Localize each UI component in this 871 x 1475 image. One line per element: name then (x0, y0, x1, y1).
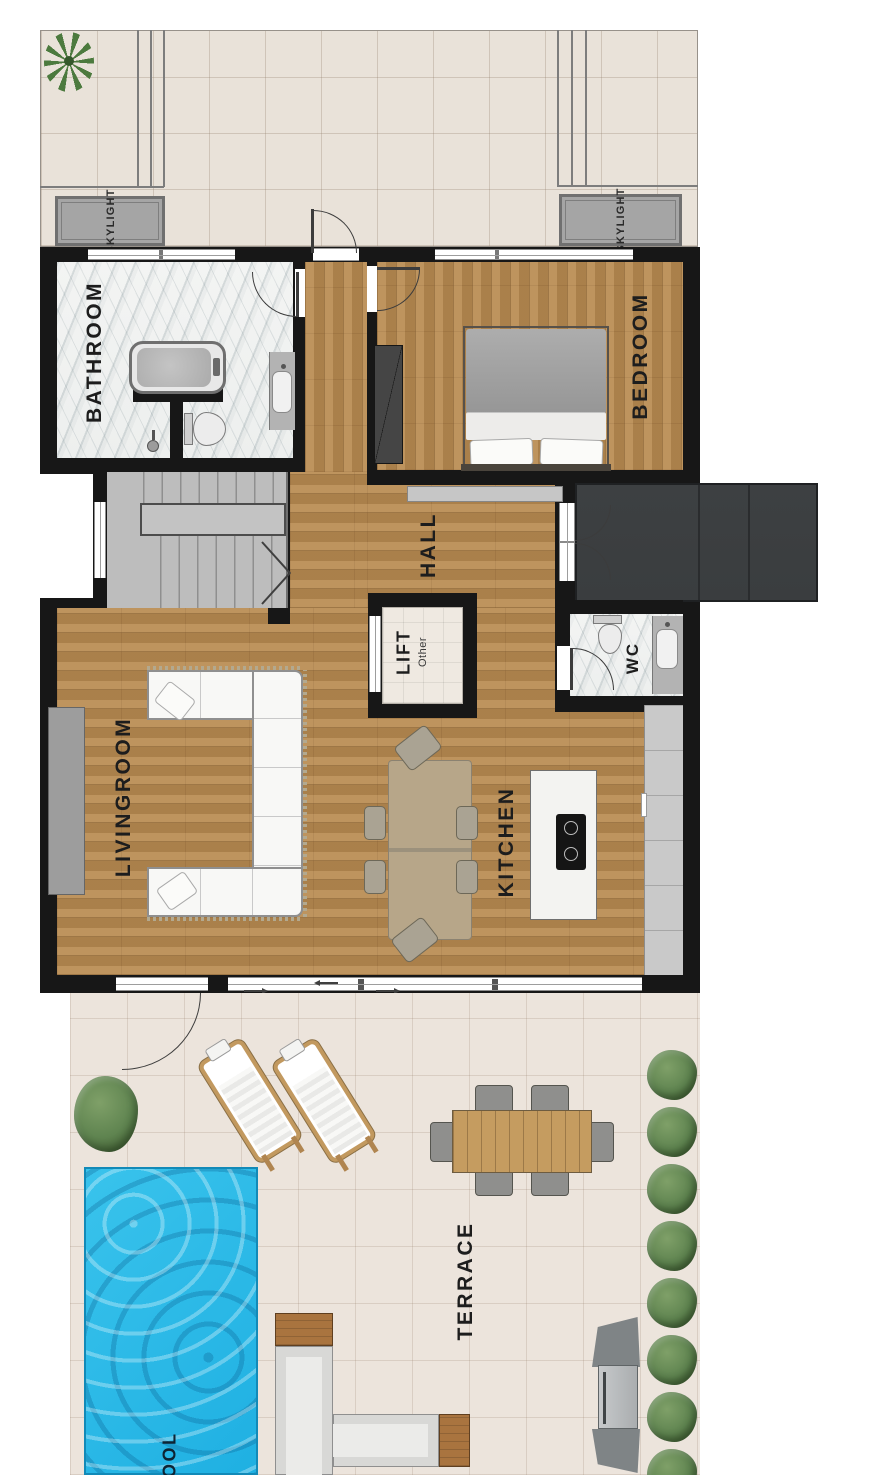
entry-deck-dark (575, 483, 818, 602)
cooktop-burner (564, 847, 578, 861)
roof-joint-line (557, 30, 559, 185)
slide-arrow (244, 990, 262, 992)
outdoor-sofa-wood-end-right (439, 1414, 470, 1467)
swimming-pool (84, 1167, 258, 1475)
bathtub-basin (137, 348, 211, 387)
roof-joint-line (163, 30, 165, 187)
roof-joint-line (137, 30, 139, 187)
hedge-bush (647, 1278, 697, 1328)
lift-label: LIFT (394, 629, 415, 675)
dining-chair-right-1 (456, 806, 478, 840)
shower-head (147, 440, 159, 452)
bed-pillow-left (470, 438, 534, 467)
hall-floor-west (290, 472, 367, 608)
outdoor-dining-table (452, 1110, 592, 1173)
deck-seam (748, 485, 750, 600)
bed-headboard (461, 464, 611, 471)
terrace-door-opening (116, 977, 208, 991)
bathtub-faucet (213, 358, 220, 376)
wardrobe (374, 345, 403, 464)
wc-faucet (665, 622, 670, 627)
deck-seam (698, 485, 700, 600)
roof-joint-line (585, 30, 587, 185)
kitchen-label: KITCHEN (495, 787, 519, 898)
outdoor-sofa-seat (333, 1424, 428, 1457)
bed-blanket (466, 329, 606, 414)
pool-label: POOL (160, 1431, 181, 1475)
window-mullion (492, 979, 498, 990)
stair-stub-wall (268, 608, 290, 624)
stair-railing (140, 503, 286, 536)
hall-sideboard (407, 486, 563, 502)
lift-door (369, 616, 381, 692)
floor-plan: SKYLIGHT SKYLIGHT (0, 0, 871, 1475)
roof-joint-line (150, 30, 152, 187)
stair-steps-upper (143, 472, 288, 503)
slide-arrow (320, 982, 338, 984)
bathroom-faucet (281, 364, 286, 369)
bathroom-sink (272, 371, 292, 413)
cooktop-burner (564, 821, 578, 835)
wc-sink (656, 629, 678, 669)
dining-chair-left-1 (364, 806, 386, 840)
corridor-floor (305, 262, 367, 472)
window-mullion (358, 979, 364, 990)
terrace-bush-large (74, 1076, 138, 1152)
bedroom-label: BEDROOM (629, 292, 653, 419)
outdoor-sofa-seat (286, 1357, 322, 1475)
stair-recess-exterior (20, 474, 93, 598)
hedge-bush (647, 1335, 697, 1385)
slide-arrow-head (314, 980, 320, 986)
kitchen-counter (644, 705, 683, 975)
entry-double-door-frame (559, 503, 575, 581)
stair-window (94, 502, 106, 578)
roof-plant-center (64, 56, 74, 66)
hedge-bush (647, 1221, 697, 1271)
hall-label: HALL (417, 512, 441, 578)
livingroom-label: LIVINGROOM (112, 717, 136, 877)
sofa-edge-right (303, 670, 307, 917)
hall-floor-east (367, 485, 555, 608)
terrace-label: TERRACE (454, 1221, 478, 1340)
sofa-edge-bottom (147, 917, 303, 921)
dining-table (388, 760, 472, 940)
bathroom-label: BATHROOM (83, 281, 107, 423)
toilet (184, 413, 193, 445)
bbq-grill-handle (603, 1372, 606, 1424)
bed-sheet (466, 412, 606, 440)
window-mullion (495, 250, 499, 259)
door-frame-divider (560, 541, 574, 543)
bed-pillow-right (540, 438, 604, 467)
bedroom-window (435, 249, 633, 260)
tv-unit (48, 707, 85, 895)
wc-door-opening (557, 646, 570, 690)
wc-label: WC (623, 642, 643, 674)
hedge-bush (647, 1164, 697, 1214)
terrace-window-band (228, 977, 642, 991)
kitchen-counter-handle (641, 793, 647, 817)
hedge-bush (647, 1392, 697, 1442)
hedge-bush (647, 1050, 697, 1100)
window-mullion (159, 250, 163, 259)
bbq-grill-body (598, 1365, 638, 1429)
shower-arm (152, 430, 155, 440)
bathroom-partition-v (170, 395, 183, 461)
roof-joint-line (571, 30, 573, 185)
lift-type-label: Other (417, 637, 429, 667)
outdoor-sofa-wood-end-top (275, 1313, 333, 1346)
roof-joint-line (40, 186, 164, 188)
bedroom-door-opening (367, 266, 377, 312)
bathtub (129, 341, 226, 394)
dining-chair-left-2 (364, 860, 386, 894)
dining-chair-right-2 (456, 860, 478, 894)
slide-arrow (376, 990, 394, 992)
cooktop (556, 814, 586, 870)
hedge-bush (647, 1107, 697, 1157)
roof-joint-line (557, 185, 698, 187)
wc-toilet-tank (593, 615, 622, 624)
bathroom-window (88, 249, 235, 260)
skylight-right-label: SKYLIGHT (615, 187, 627, 252)
skylight-left-label: SKYLIGHT (105, 188, 117, 253)
